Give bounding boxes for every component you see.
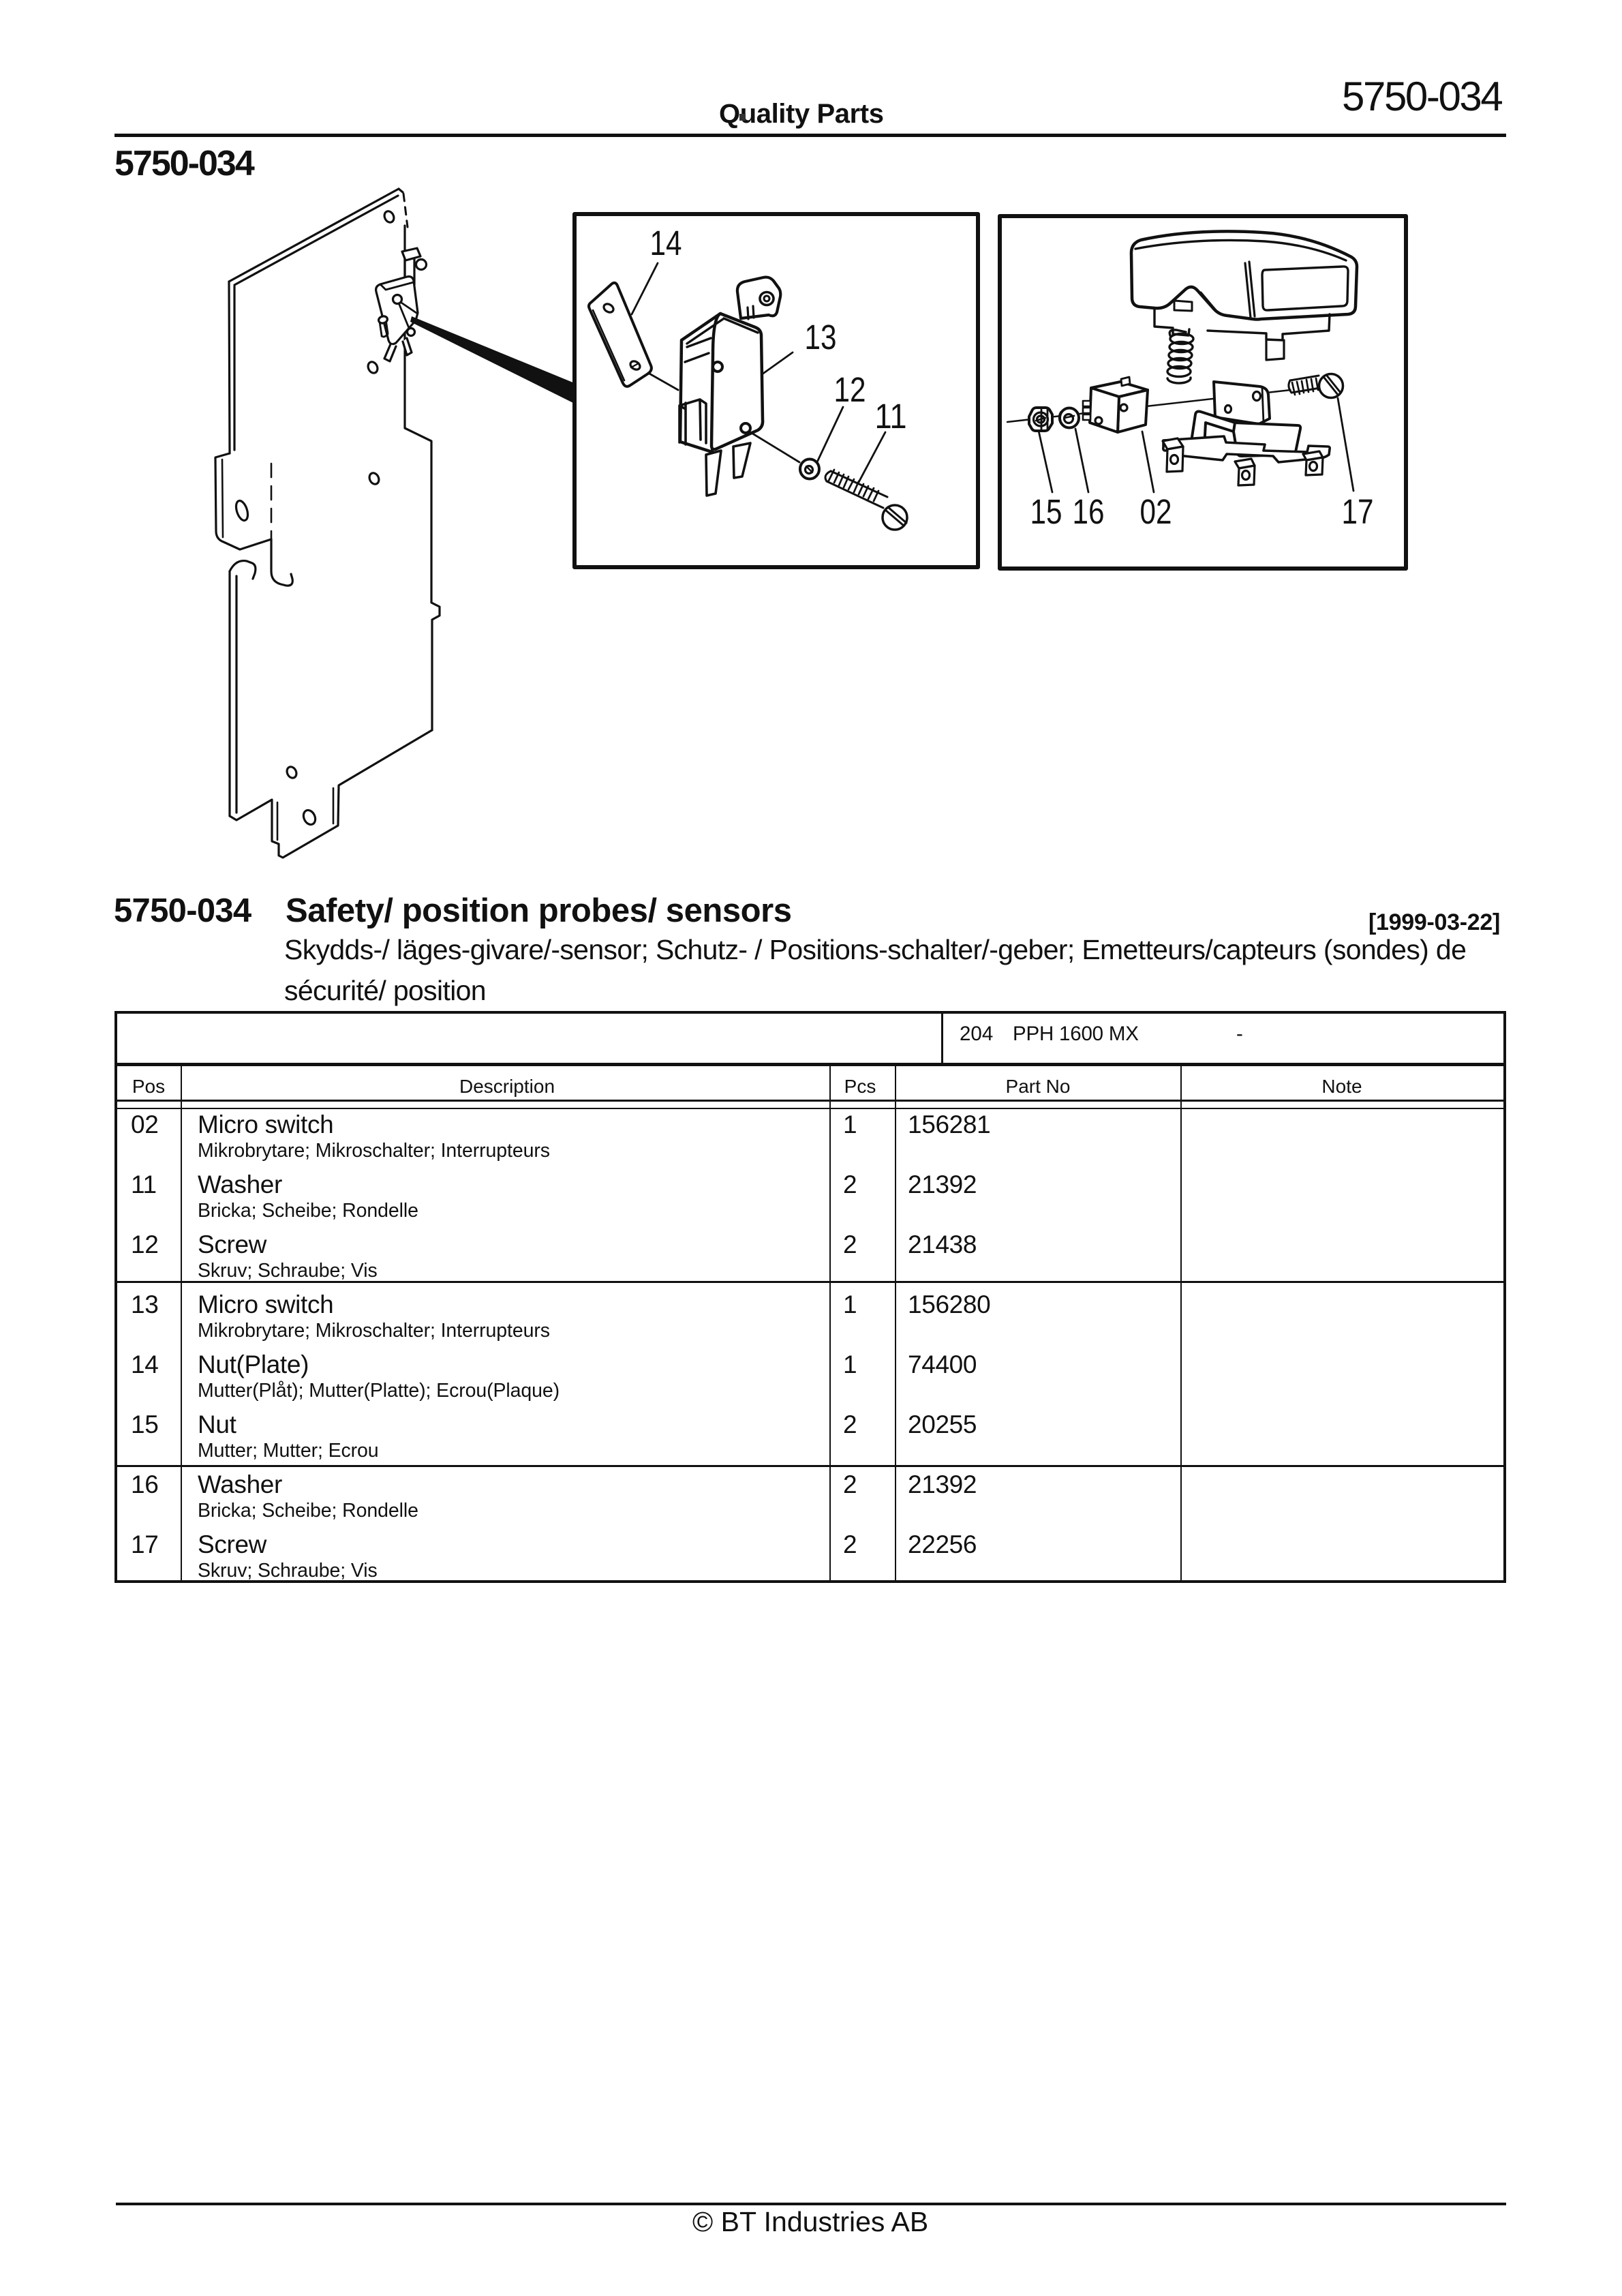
svg-text:13: 13 — [805, 318, 837, 357]
svg-text:15: 15 — [1030, 492, 1062, 531]
svg-text:12: 12 — [834, 370, 866, 409]
svg-text:16: 16 — [1073, 492, 1105, 531]
svg-text:02: 02 — [1140, 492, 1172, 531]
svg-text:14: 14 — [650, 224, 682, 262]
svg-text:17: 17 — [1342, 492, 1374, 531]
svg-text:11: 11 — [875, 397, 907, 436]
